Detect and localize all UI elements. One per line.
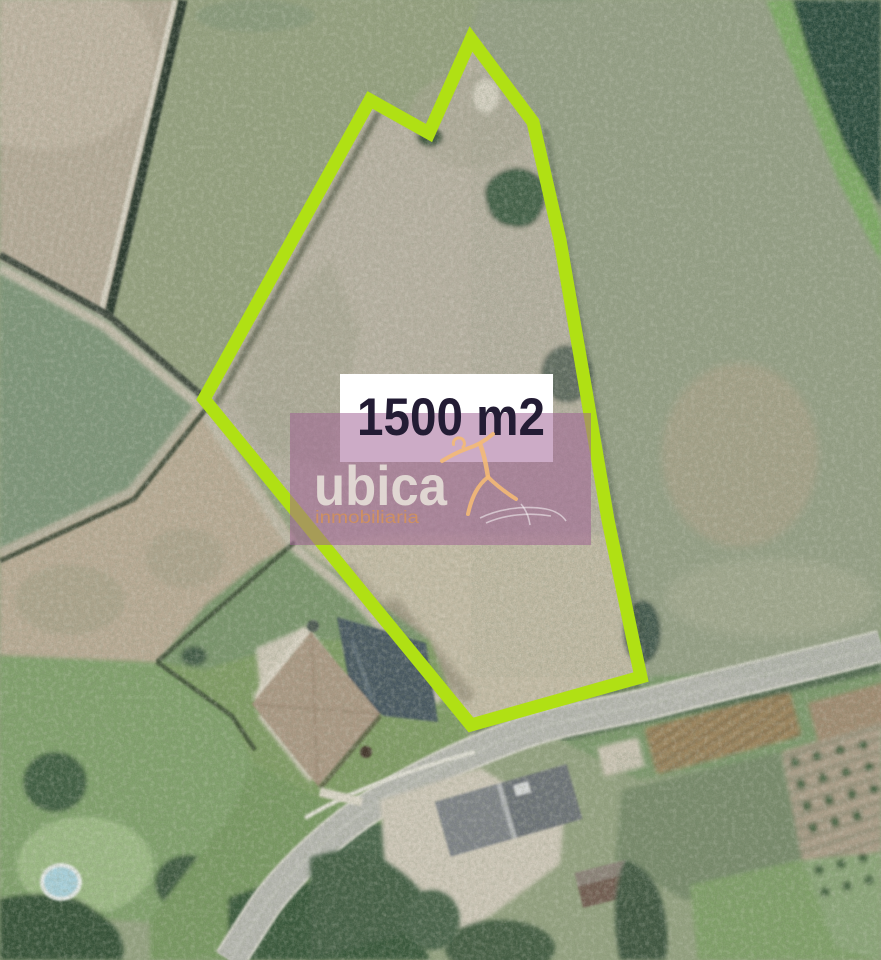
- svg-text:1500 m2: 1500 m2: [357, 388, 545, 447]
- svg-text:inmobiliaria: inmobiliaria: [315, 507, 419, 527]
